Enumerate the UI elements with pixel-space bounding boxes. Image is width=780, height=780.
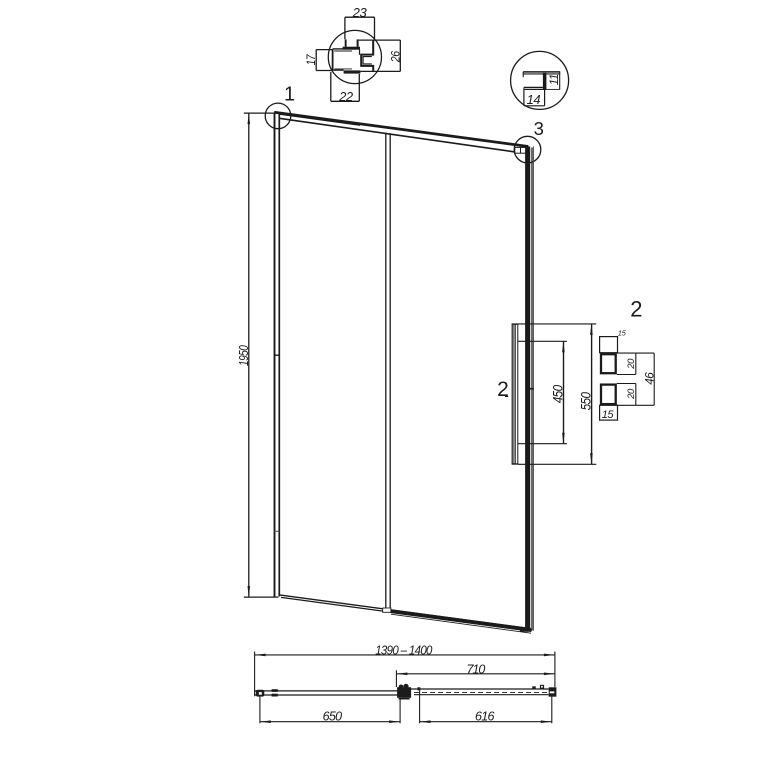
svg-text:20: 20	[626, 358, 637, 370]
svg-text:710: 710	[466, 662, 485, 676]
svg-text:1390 – 1400: 1390 – 1400	[375, 643, 432, 657]
svg-text:3: 3	[534, 118, 544, 139]
svg-text:450: 450	[550, 384, 566, 403]
svg-text:550: 550	[577, 391, 593, 410]
svg-text:17: 17	[305, 54, 318, 66]
svg-text:1950: 1950	[237, 345, 251, 366]
svg-text:1: 1	[284, 83, 295, 105]
svg-text:20: 20	[626, 388, 637, 400]
svg-text:2: 2	[497, 378, 509, 401]
svg-text:616: 616	[475, 709, 495, 723]
svg-text:22: 22	[338, 89, 354, 104]
svg-text:11: 11	[549, 74, 561, 85]
svg-text:15: 15	[602, 409, 615, 421]
svg-text:26: 26	[390, 50, 403, 63]
svg-text:23: 23	[352, 5, 368, 20]
svg-text:46: 46	[644, 372, 657, 385]
svg-text:15: 15	[618, 328, 627, 337]
svg-text:2: 2	[630, 296, 642, 321]
svg-text:14: 14	[527, 92, 541, 107]
svg-text:650: 650	[323, 709, 343, 723]
